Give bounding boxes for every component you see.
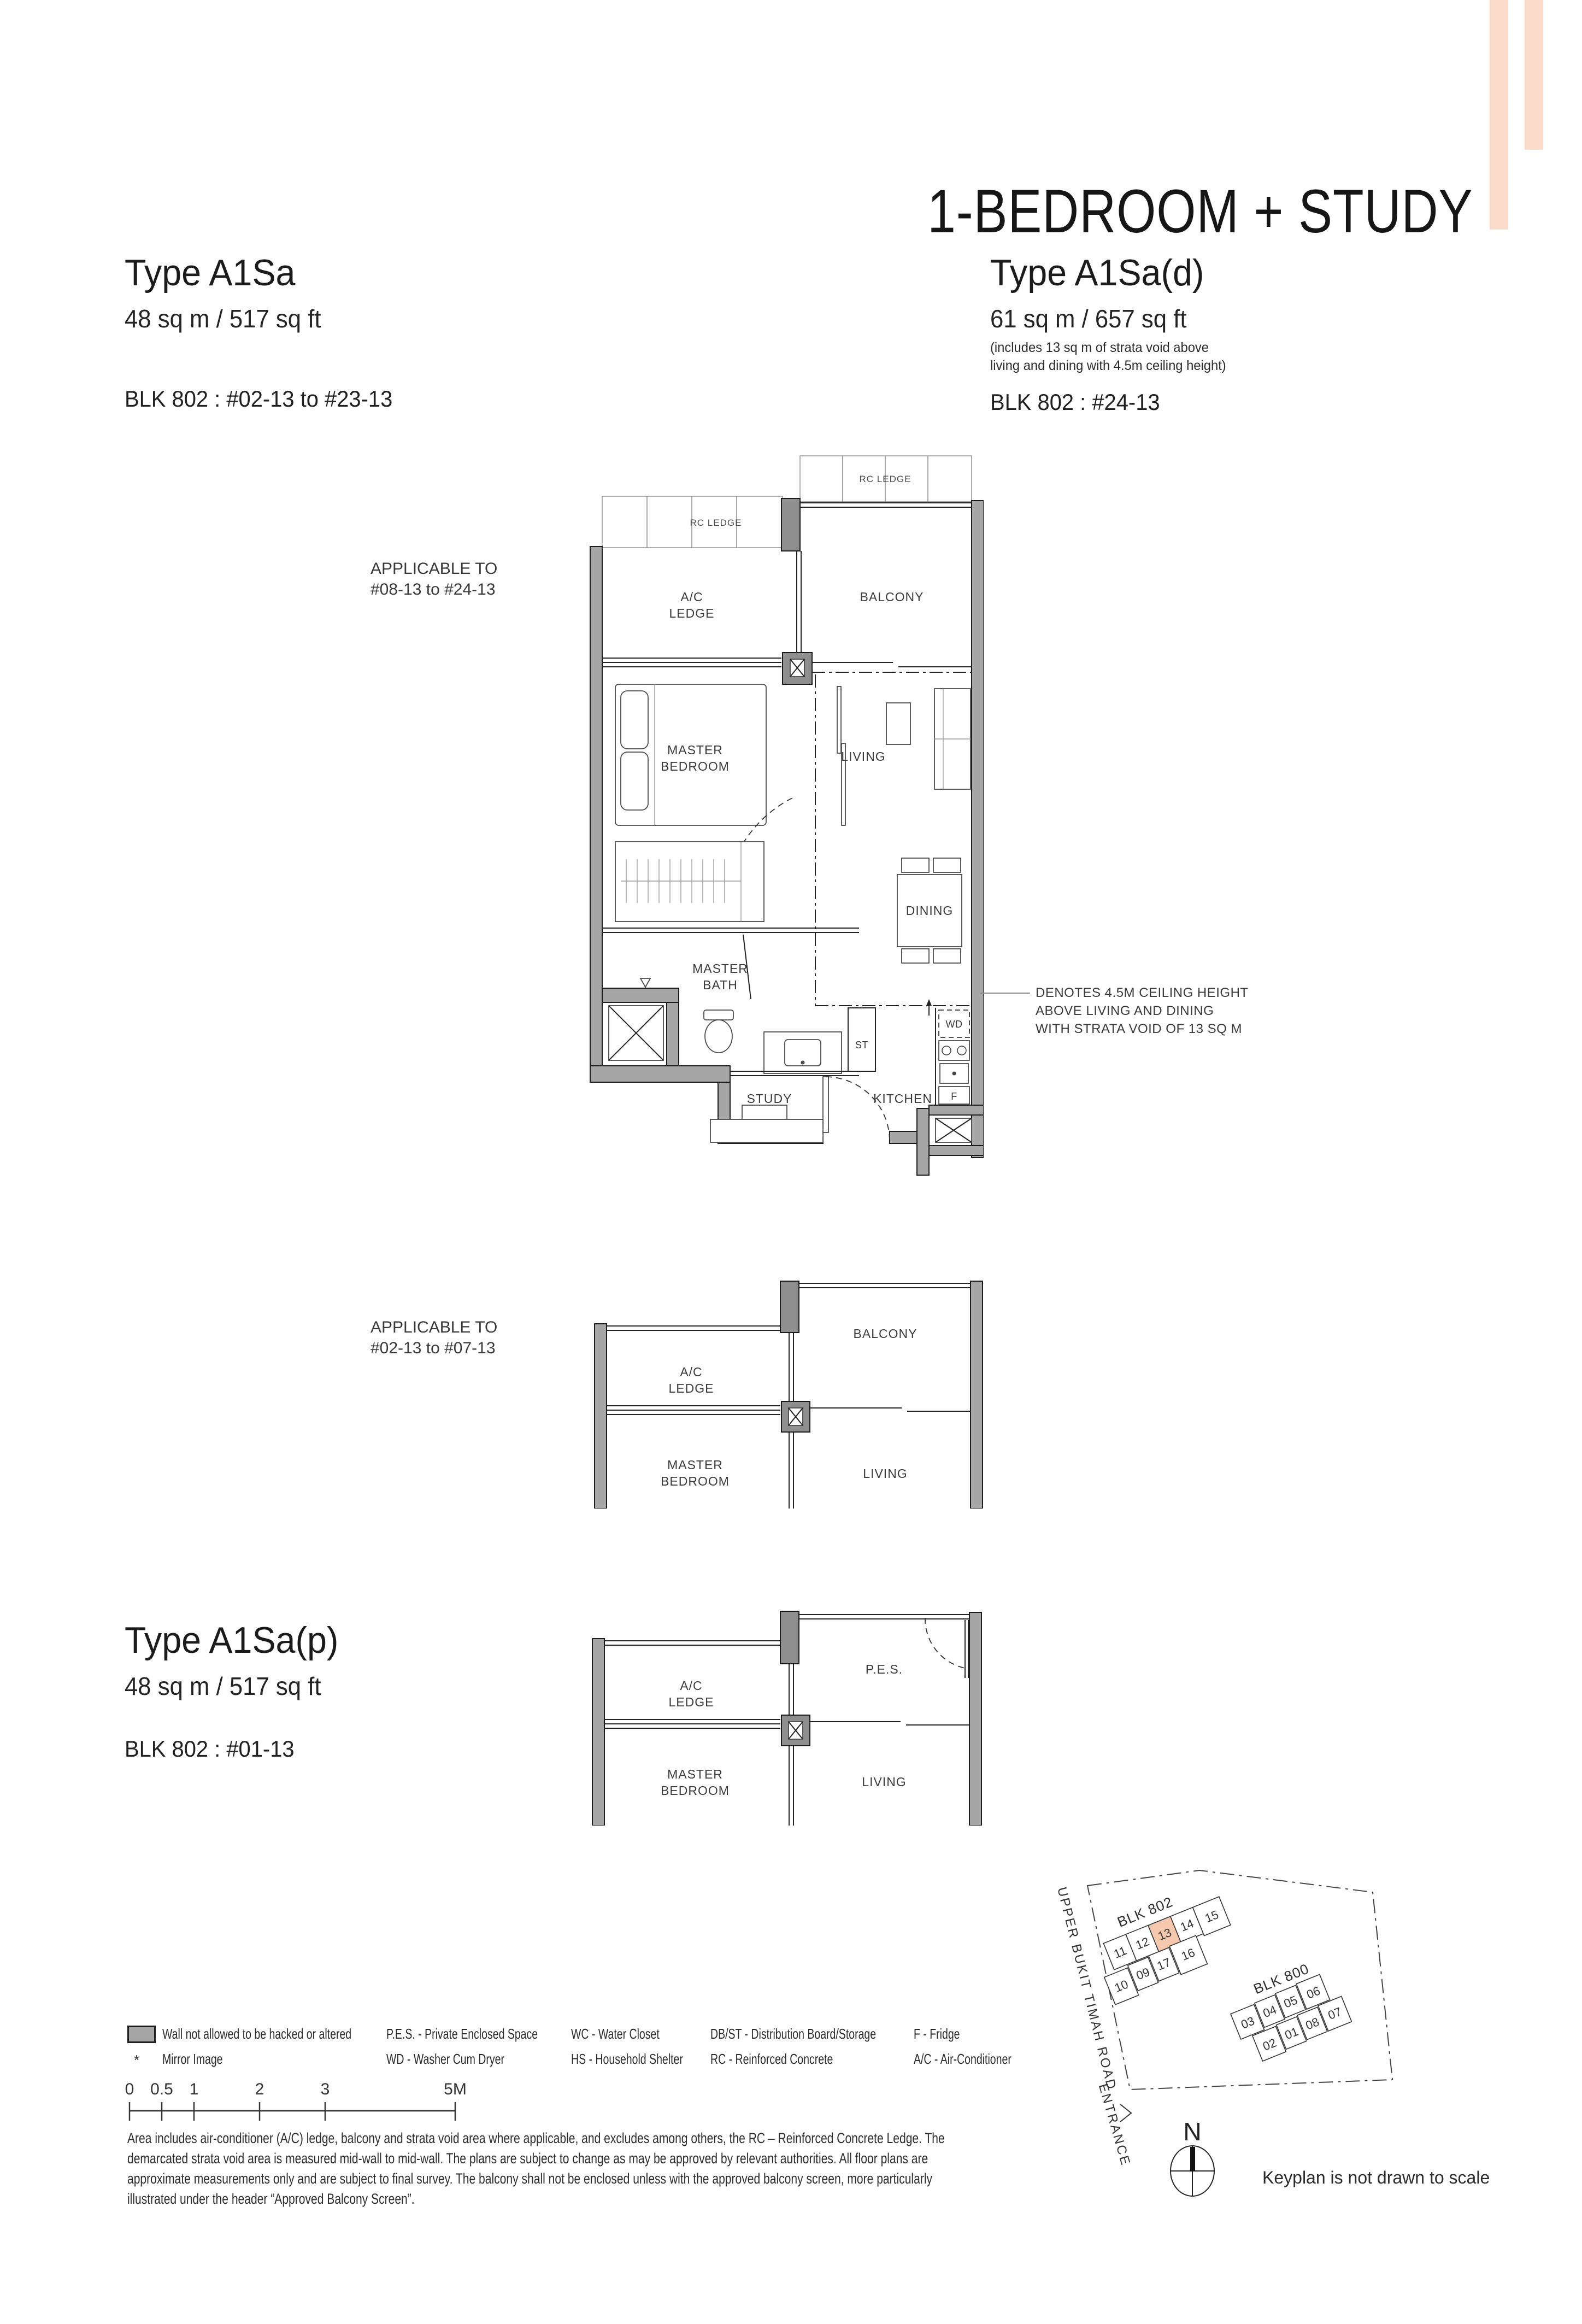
floorplan-a1sa-main: RC LEDGE RC LEDGE xyxy=(579,437,984,1181)
label-ac2: LEDGE xyxy=(669,606,715,620)
legend-dbst: DB/ST - Distribution Board/Storage xyxy=(710,2026,876,2043)
toilet xyxy=(705,1020,732,1053)
legend-pes: P.E.S. - Private Enclosed Space xyxy=(386,2026,538,2043)
label-balcony: BALCONY xyxy=(860,590,924,604)
entrance-door xyxy=(823,1077,890,1141)
annotation-line2: ABOVE LIVING AND DINING xyxy=(1036,1002,1249,1020)
legend-mirror: Mirror Image xyxy=(162,2051,223,2068)
unit-type-a1sa: Type A1Sa xyxy=(125,251,392,294)
scale-bar: 0 0.5 1 2 3 5M xyxy=(120,2076,481,2131)
applicable-plan2-line2: #02-13 to #07-13 xyxy=(370,1338,497,1359)
label-kitchen: KITCHEN xyxy=(873,1091,932,1106)
ac-duct-box xyxy=(936,1118,972,1142)
legend-ac: A/C - Air-Conditioner xyxy=(914,2051,1011,2068)
label-living: LIVING xyxy=(841,749,885,764)
label-master2: BEDROOM xyxy=(661,1474,730,1488)
scale-3: 3 xyxy=(321,2080,330,2098)
coffee-table xyxy=(886,703,910,744)
applicable-plan1-line1: APPLICABLE TO xyxy=(370,559,497,579)
deco-bar-short xyxy=(1525,0,1543,150)
unit-area-a1sad: 61 sq m / 657 sq ft xyxy=(990,304,1226,333)
floorplan-a1sa-low: A/C LEDGE BALCONY MASTER BEDROOM LIVING xyxy=(579,1273,984,1509)
label-study: STUDY xyxy=(747,1091,792,1106)
label-wd: WD xyxy=(946,1019,963,1030)
category-title-wrap: 1-BEDROOM + STUDY xyxy=(820,176,1454,247)
unit-note2-a1sad: living and dining with 4.5m ceiling heig… xyxy=(990,357,1226,375)
shower xyxy=(609,1006,663,1060)
rc-ledge-left: RC LEDGE xyxy=(602,496,783,548)
label-ac1: A/C xyxy=(680,590,703,604)
label-ac2: LEDGE xyxy=(669,1381,714,1395)
legend-wc: WC - Water Closet xyxy=(571,2026,660,2043)
column-junction-box xyxy=(781,1401,810,1432)
label-bath2: BATH xyxy=(703,978,738,992)
strata-void-annotation: DENOTES 4.5M CEILING HEIGHT ABOVE LIVING… xyxy=(1036,984,1249,1038)
unit-area-a1sa: 48 sq m / 517 sq ft xyxy=(125,304,392,333)
label-living: LIVING xyxy=(862,1775,906,1789)
wall-legend-icon xyxy=(127,2026,156,2043)
annotation-line3: WITH STRATA VOID OF 13 SQ M xyxy=(1036,1020,1249,1038)
mirror-bullet-icon: * xyxy=(134,2052,139,2069)
sofa xyxy=(934,689,971,789)
legend-f: F - Fridge xyxy=(914,2026,960,2043)
scale-2: 2 xyxy=(255,2080,264,2098)
legend-hs: HS - Household Shelter xyxy=(571,2051,683,2068)
label-living: LIVING xyxy=(863,1466,907,1481)
unit-block-a1sad: BLK 802 : #24-13 xyxy=(990,389,1226,415)
label-dining: DINING xyxy=(906,903,954,918)
unit-block-a1sap: BLK 802 : #01-13 xyxy=(125,1736,338,1762)
north-arrow: N xyxy=(1158,2118,1230,2200)
rc-ledge-left-label: RC LEDGE xyxy=(690,518,742,528)
label-master1: MASTER xyxy=(667,1767,723,1781)
scale-0: 0 xyxy=(125,2080,134,2098)
blk-800-cluster: BLK 800 03 04 05 06 02 01 08 07 xyxy=(1222,1953,1353,2066)
unit-area-a1sap: 48 sq m / 517 sq ft xyxy=(125,1671,338,1701)
label-pes: P.E.S. xyxy=(866,1662,903,1676)
label-master2: BEDROOM xyxy=(661,1783,730,1798)
label-ac1: A/C xyxy=(680,1679,702,1693)
label-bath1: MASTER xyxy=(692,961,748,976)
label-dbst2: ST xyxy=(855,1040,868,1051)
legend-rc: RC - Reinforced Concrete xyxy=(710,2051,833,2068)
label-fridge: F xyxy=(951,1091,957,1102)
unit-note1-a1sad: (includes 13 sq m of strata void above xyxy=(990,339,1226,357)
faucet-dot xyxy=(801,1061,805,1065)
label-ac2: LEDGE xyxy=(669,1695,714,1709)
scale-5m: 5M xyxy=(444,2080,467,2098)
entrance-label: ENTRANCE xyxy=(1096,2082,1133,2168)
applicable-plan1: APPLICABLE TO #08-13 to #24-13 xyxy=(370,559,497,600)
column-junction-box xyxy=(781,1715,810,1746)
toilet-tank xyxy=(704,1010,733,1020)
label-master2: BEDROOM xyxy=(661,759,730,773)
applicable-plan2: APPLICABLE TO #02-13 to #07-13 xyxy=(370,1317,497,1359)
unit-type-a1sap: Type A1Sa(p) xyxy=(125,1619,338,1662)
unit-header-a1sa: Type A1Sa 48 sq m / 517 sq ft BLK 802 : … xyxy=(125,251,407,412)
floorplan-page: 1-BEDROOM + STUDY Type A1Sa 48 sq m / 51… xyxy=(0,0,1582,2324)
arrow-up-icon xyxy=(926,999,932,1006)
applicable-plan1-line2: #08-13 to #24-13 xyxy=(370,579,497,600)
legend-wd: WD - Washer Cum Dryer xyxy=(386,2051,504,2068)
label-ac1: A/C xyxy=(680,1365,702,1379)
page-title: 1-BEDROOM + STUDY xyxy=(927,176,1454,247)
legend-wall: Wall not allowed to be hacked or altered xyxy=(162,2026,351,2043)
unit-type-a1sad: Type A1Sa(d) xyxy=(990,251,1226,294)
north-label: N xyxy=(1183,2118,1201,2146)
entrance-chevron-icon xyxy=(1120,2104,1131,2122)
label-master1: MASTER xyxy=(667,1458,723,1472)
hob xyxy=(939,1041,969,1060)
floor-trap-icon xyxy=(640,978,650,987)
wardrobe xyxy=(615,842,764,922)
pes-gate xyxy=(925,1618,968,1678)
blk-802-cluster: BLK 802 11 12 13 14 15 10 09 17 16 xyxy=(1084,1876,1242,2005)
scale-05: 0.5 xyxy=(150,2080,173,2098)
rc-ledge-right-label: RC LEDGE xyxy=(860,474,911,484)
applicable-plan2-line1: APPLICABLE TO xyxy=(370,1317,497,1338)
floorplan-a1sap: A/C LEDGE P.E.S. MASTER BEDROOM LIVING xyxy=(579,1585,984,1826)
disclaimer-text: Area includes air-conditioner (A/C) ledg… xyxy=(127,2128,975,2209)
unit-header-a1sad: Type A1Sa(d) 61 sq m / 657 sq ft (includ… xyxy=(990,251,1238,415)
label-balcony: BALCONY xyxy=(854,1327,918,1341)
annotation-leader-line xyxy=(980,993,1030,994)
unit-block-a1sa: BLK 802 : #02-13 to #23-13 xyxy=(125,386,392,412)
keyplan-note: Keyplan is not drawn to scale xyxy=(1262,2168,1490,2188)
unit-header-a1sap: Type A1Sa(p) 48 sq m / 517 sq ft BLK 802… xyxy=(125,1619,350,1762)
rc-ledge-right: RC LEDGE xyxy=(800,456,972,502)
annotation-line1: DENOTES 4.5M CEILING HEIGHT xyxy=(1036,984,1249,1002)
column-junction-box xyxy=(783,653,812,684)
north-needle-icon xyxy=(1190,2147,1195,2171)
deco-bar-long xyxy=(1490,0,1508,230)
label-master1: MASTER xyxy=(667,743,723,757)
scale-1: 1 xyxy=(190,2080,199,2098)
